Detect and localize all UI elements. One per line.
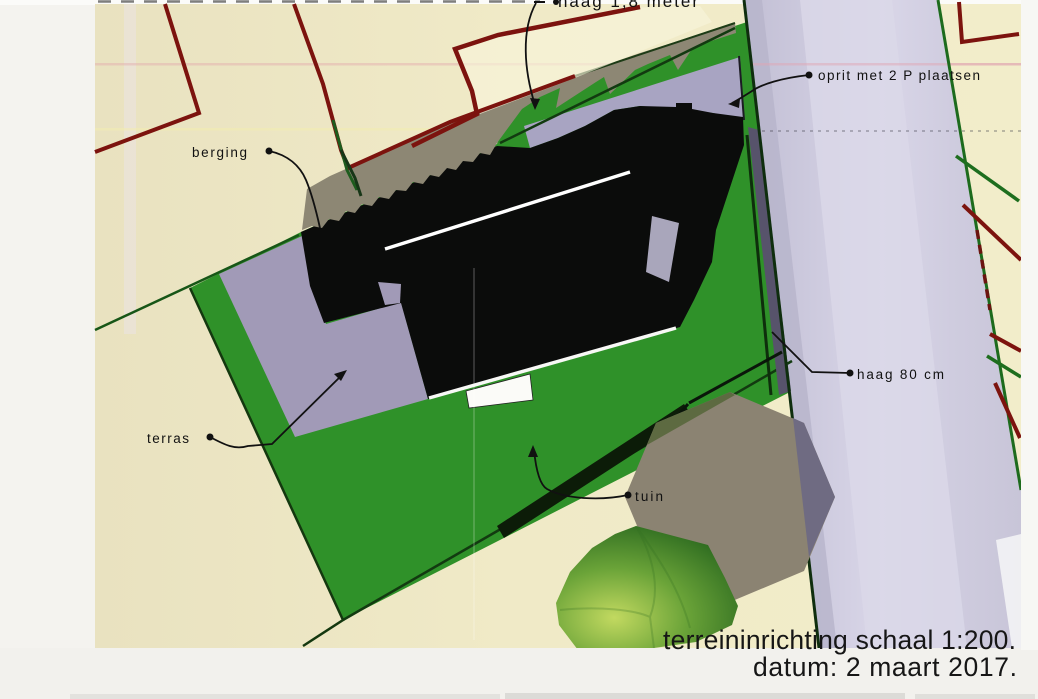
svg-text:datum: 2 maart 2017.: datum: 2 maart 2017. (753, 652, 1017, 682)
svg-text:terras: terras (147, 431, 189, 446)
svg-text:terreininrichting schaal 1:200: terreininrichting schaal 1:200. (663, 625, 1016, 655)
svg-text:berging: berging (192, 145, 247, 160)
svg-text:oprit met 2 P plaatsen: oprit met 2 P plaatsen (818, 68, 980, 83)
